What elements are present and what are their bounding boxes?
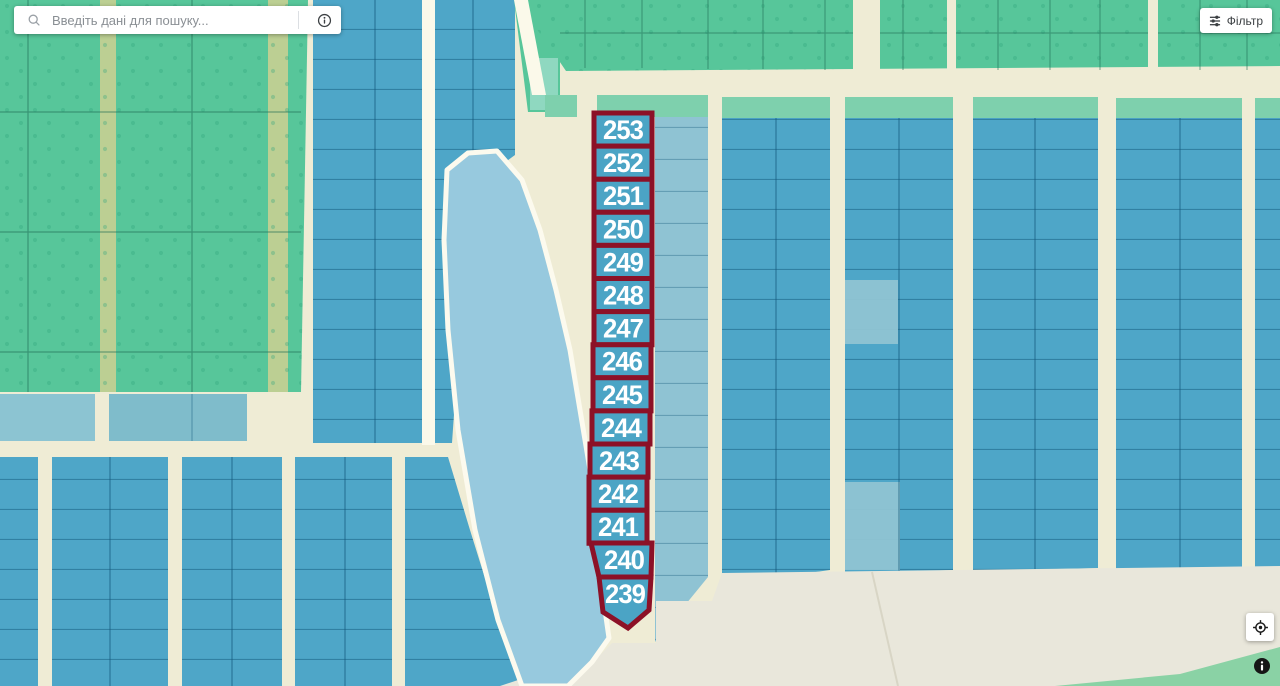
parcel-number-label: 245 <box>602 379 642 410</box>
parcel-number-label: 246 <box>602 346 642 377</box>
highlighted-parcels: 2532522512502492482472462452442432422412… <box>589 113 652 628</box>
teal-band <box>545 95 1280 118</box>
parcel-number-label: 239 <box>605 578 645 609</box>
parcel-number-label: 244 <box>601 412 642 443</box>
road-horizontal <box>0 441 520 457</box>
filter-button-label: Фільтр <box>1227 14 1263 28</box>
info-circle-icon <box>1253 657 1271 675</box>
parcel-number-label: 248 <box>603 280 643 311</box>
canal-band <box>0 394 247 443</box>
info-icon <box>316 12 333 29</box>
search-info-button[interactable] <box>307 6 341 34</box>
search-divider <box>298 11 299 29</box>
search-icon <box>26 12 42 28</box>
search-bar <box>14 6 341 34</box>
parcel-number-label: 251 <box>603 181 643 212</box>
my-location-icon <box>1252 619 1269 636</box>
field-block-left <box>0 0 308 392</box>
parcel-number-label: 240 <box>604 544 644 575</box>
parcel-number-label: 243 <box>599 445 639 476</box>
map-canvas[interactable]: 2532522512502492482472462452442432422412… <box>0 0 1280 686</box>
parcel-number-label: 241 <box>598 512 638 543</box>
parcel-number-label: 252 <box>603 147 643 178</box>
locate-button[interactable] <box>1246 613 1274 641</box>
parcel-number-label: 242 <box>598 478 638 509</box>
cadastral-map-app: 2532522512502492482472462452442432422412… <box>0 0 1280 686</box>
search-input[interactable] <box>50 12 290 29</box>
parcel-number-label: 247 <box>603 313 643 344</box>
parcel-number-label: 250 <box>603 214 643 245</box>
parcel-blocks-right <box>722 118 1280 585</box>
parcel-number-label: 253 <box>603 114 643 145</box>
tune-icon <box>1209 15 1221 27</box>
parcel-column-light <box>655 117 708 642</box>
filter-button[interactable]: Фільтр <box>1200 8 1272 33</box>
parcel-number-label: 249 <box>603 247 643 278</box>
map-info-button[interactable] <box>1253 657 1271 675</box>
parcel-columns-bottom-left <box>0 443 522 686</box>
